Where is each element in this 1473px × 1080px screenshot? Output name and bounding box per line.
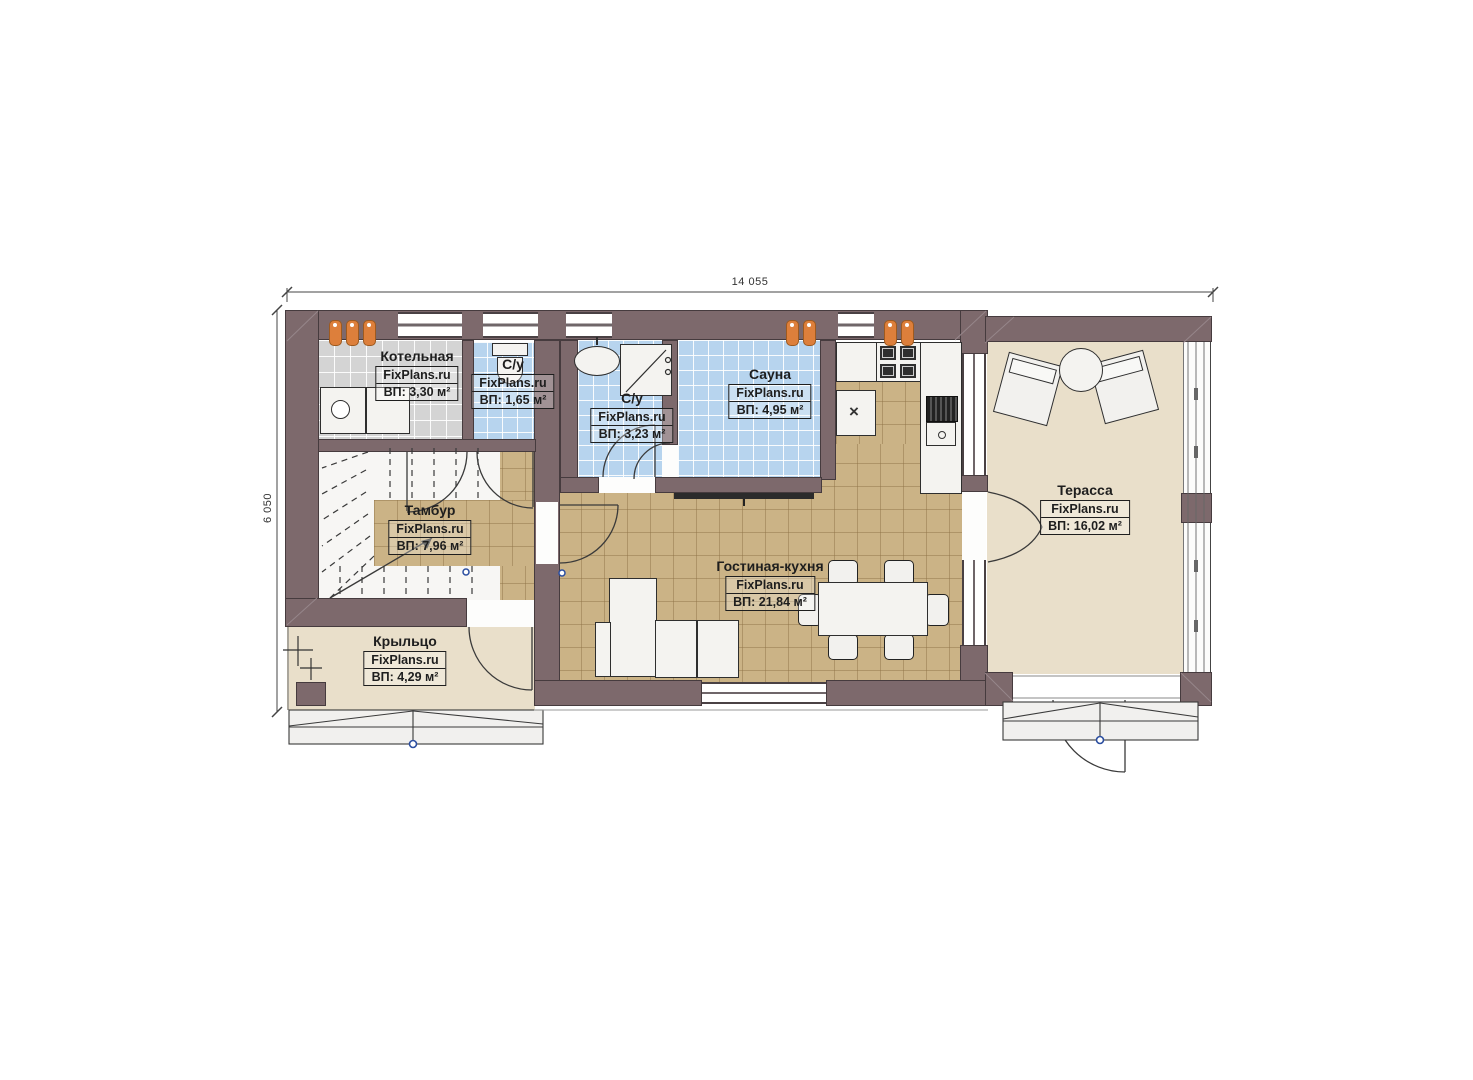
window <box>483 312 538 338</box>
stove-burner <box>880 346 896 360</box>
terrace-post-bottom <box>1180 672 1212 706</box>
room-brand: FixPlans.ru <box>591 409 672 426</box>
terrace-table <box>1059 348 1103 392</box>
window <box>962 354 986 475</box>
window <box>962 560 986 645</box>
sofa <box>595 622 611 677</box>
room-area: ВП: 3,30 м² <box>376 384 457 400</box>
dining-chair <box>884 634 914 660</box>
terrace-post-mid <box>1181 493 1212 523</box>
toilet-icon <box>492 343 528 356</box>
shower-icon <box>620 344 672 396</box>
wall-bottom-left <box>285 598 467 627</box>
room-label-tambur: Тамбур FixPlans.ru ВП: 7,96 м² <box>388 502 471 555</box>
steps-terrace <box>1003 676 1198 744</box>
dimension-label-top: 14 055 <box>690 276 810 288</box>
floor-plan: × <box>0 0 1473 1080</box>
dimension-line-top <box>282 287 1218 302</box>
boiler-counter-divider <box>365 388 367 433</box>
room-info-box: FixPlans.ru ВП: 21,84 м² <box>725 576 815 611</box>
room-brand: FixPlans.ru <box>364 652 445 669</box>
wall-sauna-south-a <box>560 477 599 493</box>
stove-burner <box>880 364 896 378</box>
room-name: Тамбур <box>388 502 471 518</box>
room-label-su-2: С/у FixPlans.ru ВП: 3,23 м² <box>590 390 673 443</box>
room-area: ВП: 16,02 м² <box>1041 518 1129 534</box>
room-name: Котельная <box>375 348 458 364</box>
room-area: ВП: 7,96 м² <box>389 538 470 554</box>
door-opening-tambur <box>536 502 558 564</box>
window <box>838 312 874 338</box>
dining-table <box>818 582 928 636</box>
wall-bottom-main-a <box>534 680 702 706</box>
window <box>398 312 462 338</box>
room-name: Крыльцо <box>363 633 446 649</box>
wall-living-right-c <box>960 645 988 685</box>
room-label-kotelnaya: Котельная FixPlans.ru ВП: 3,30 м² <box>375 348 458 401</box>
room-name: Терасса <box>1040 482 1130 498</box>
room-brand: FixPlans.ru <box>726 577 814 594</box>
wall-sauna-right <box>820 340 836 480</box>
porch-pillar <box>296 682 326 706</box>
radiator-icon <box>786 320 816 346</box>
sofa-cushion-divider <box>696 621 698 677</box>
room-area: ВП: 21,84 м² <box>726 594 814 610</box>
dining-chair <box>828 634 858 660</box>
cabinet-cross-mark: × <box>849 402 859 422</box>
room-info-box: FixPlans.ru ВП: 1,65 м² <box>471 374 554 409</box>
wall-left <box>285 310 319 627</box>
room-brand: FixPlans.ru <box>1041 501 1129 518</box>
room-info-box: FixPlans.ru ВП: 4,95 м² <box>728 384 811 419</box>
room-brand: FixPlans.ru <box>376 367 457 384</box>
room-info-box: FixPlans.ru ВП: 16,02 м² <box>1040 500 1130 535</box>
door-opening-su2 <box>599 477 655 493</box>
wall-sauna-south-b <box>655 477 822 493</box>
room-name: Сауна <box>728 366 811 382</box>
wall-top <box>285 310 987 340</box>
window <box>566 312 612 338</box>
kitchen-sink-icon <box>926 396 958 422</box>
wall-living-right-b <box>960 475 988 492</box>
room-brand: FixPlans.ru <box>729 385 810 402</box>
room-name: С/у <box>590 390 673 406</box>
stove-burner <box>900 364 916 378</box>
room-name: С/у <box>471 356 554 372</box>
sofa <box>609 578 657 677</box>
room-label-su-1: С/у FixPlans.ru ВП: 1,65 м² <box>471 356 554 409</box>
door-opening-sauna <box>662 445 678 477</box>
radiator-icon <box>329 320 376 346</box>
dimension-label-left: 6 050 <box>262 478 274 538</box>
wall-terrace-top <box>985 316 1212 342</box>
room-label-terassa: Терасса FixPlans.ru ВП: 16,02 м² <box>1040 482 1130 535</box>
room-brand: FixPlans.ru <box>472 375 553 392</box>
kitchen-counter <box>836 342 878 382</box>
boiler-sink-icon <box>331 400 350 419</box>
radiator-icon <box>884 320 914 346</box>
room-area: ВП: 4,29 м² <box>364 669 445 685</box>
room-label-gostinaya-kuhnya: Гостиная-кухня FixPlans.ru ВП: 21,84 м² <box>716 558 823 611</box>
wall-under-boiler <box>318 439 536 452</box>
room-info-box: FixPlans.ru ВП: 7,96 м² <box>388 520 471 555</box>
door-opening-porch <box>467 600 534 627</box>
room-info-box: FixPlans.ru ВП: 3,23 м² <box>590 408 673 443</box>
room-label-sauna: Сауна FixPlans.ru ВП: 4,95 м² <box>728 366 811 419</box>
room-info-box: FixPlans.ru ВП: 3,30 м² <box>375 366 458 401</box>
wall-terrace-bottom-left <box>985 672 1013 706</box>
door-opening-terrace <box>962 492 986 560</box>
dining-chair <box>925 594 949 626</box>
washbasin-icon <box>574 346 620 376</box>
tv-icon <box>674 493 814 499</box>
kitchen-sink-drain <box>938 431 946 439</box>
room-area: ВП: 3,23 м² <box>591 426 672 442</box>
wall-bottom-main-b <box>826 680 986 706</box>
room-name: Гостиная-кухня <box>716 558 823 574</box>
wall-living-right-a <box>960 310 988 354</box>
window <box>702 682 826 704</box>
room-info-box: FixPlans.ru ВП: 4,29 м² <box>363 651 446 686</box>
stove-burner <box>900 346 916 360</box>
room-label-krylco: Крыльцо FixPlans.ru ВП: 4,29 м² <box>363 633 446 686</box>
room-brand: FixPlans.ru <box>389 521 470 538</box>
room-area: ВП: 1,65 м² <box>472 392 553 408</box>
room-area: ВП: 4,95 м² <box>729 402 810 418</box>
